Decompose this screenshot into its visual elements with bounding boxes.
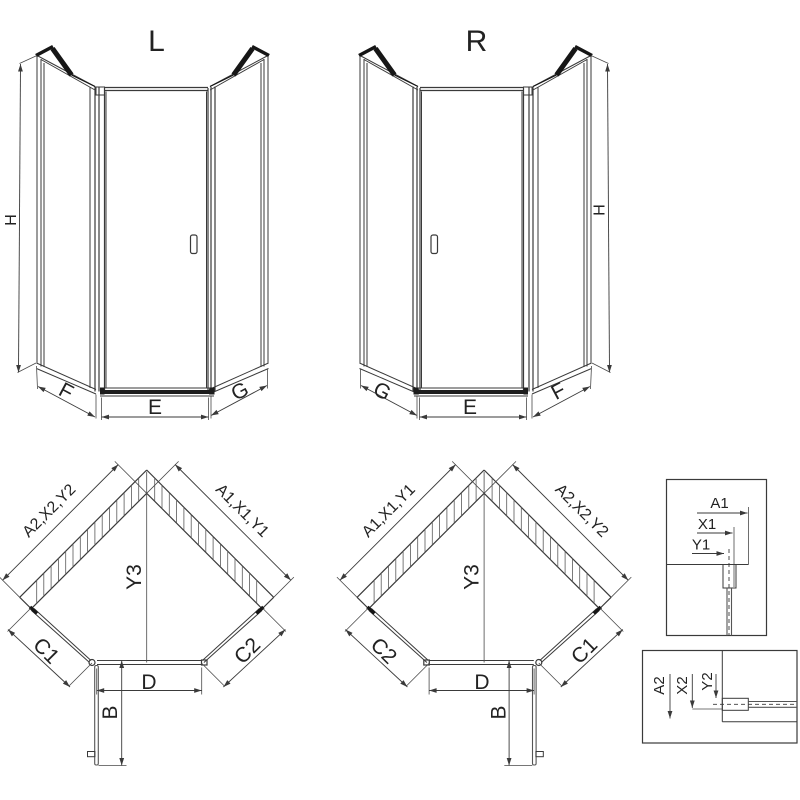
dim-label-e-left: E <box>148 396 162 419</box>
dim-label-c2-planL: C2 <box>230 633 265 668</box>
dim-label-c1-planL: C1 <box>28 633 63 668</box>
view-title-right: R <box>466 25 488 58</box>
dim-label-d-planR: D <box>474 671 489 694</box>
dim-label-c2-planR: C2 <box>366 633 401 668</box>
dim-label-f-left: F <box>55 378 77 404</box>
dim-label-g-left: G <box>227 378 252 406</box>
dim-label-y2-detail: Y2 <box>699 672 716 690</box>
dim-label-f-right: F <box>547 378 569 404</box>
dim-label-x1-detail: X1 <box>698 516 716 533</box>
dim-label-x2-detail: X2 <box>674 676 691 694</box>
dim-label-e-right: E <box>463 396 477 419</box>
dim-label-wall-left-planL: A2,X2,Y2 <box>20 481 80 541</box>
dim-label-y3-planR: Y3 <box>461 564 484 590</box>
dim-label-c1-planR: C1 <box>567 633 602 668</box>
dim-label-b-planR: B <box>488 705 511 719</box>
dim-label-a1-detail: A1 <box>710 495 728 512</box>
drawing-canvas: L H F E G R H G E F A2,X2,Y2 A1,X1,Y1 Y3… <box>0 0 800 800</box>
dim-label-y3-planL: Y3 <box>123 564 146 590</box>
shower-enclosure-technical-drawing: L H F E G R H G E F A2,X2,Y2 A1,X1,Y1 Y3… <box>0 0 800 800</box>
dim-label-a2-detail: A2 <box>651 676 668 694</box>
dim-label-h-left: H <box>3 214 20 226</box>
dim-label-y1-detail: Y1 <box>692 537 710 554</box>
elevation-view-right <box>359 47 612 421</box>
detail-box-wall-profile-bottom <box>643 651 798 744</box>
dim-label-wall-right-planR: A2,X2,Y2 <box>552 481 612 541</box>
elevation-view-left <box>16 47 269 421</box>
dim-label-b-planL: B <box>99 705 122 719</box>
dim-label-d-planL: D <box>141 671 156 694</box>
dim-label-h-right: H <box>592 204 609 216</box>
dim-label-wall-left-planR: A1,X1,Y1 <box>359 481 419 541</box>
label-layer: L H F E G R H G E F A2,X2,Y2 A1,X1,Y1 Y3… <box>3 25 729 720</box>
view-title-left: L <box>148 25 165 58</box>
